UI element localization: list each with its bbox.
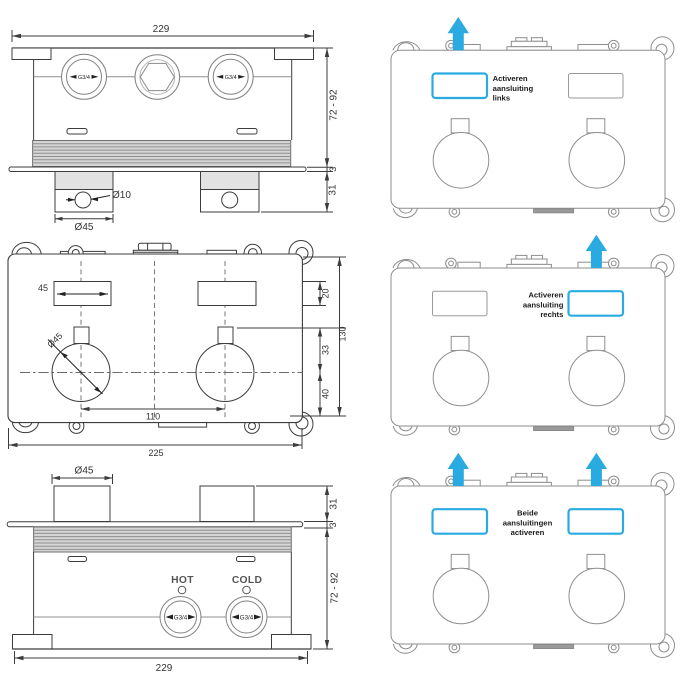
svg-text:20: 20 — [321, 288, 331, 298]
svg-text:aansluiting: aansluiting — [493, 84, 534, 93]
svg-text:110: 110 — [146, 412, 160, 422]
svg-text:72 - 92: 72 - 92 — [329, 89, 340, 121]
svg-text:G3/4: G3/4 — [225, 75, 237, 81]
svg-text:links: links — [493, 94, 511, 103]
svg-text:Ø45: Ø45 — [75, 466, 94, 477]
svg-text:G3/4: G3/4 — [240, 614, 254, 621]
svg-text:225: 225 — [148, 448, 163, 458]
svg-text:130: 130 — [338, 326, 348, 341]
svg-text:Ø45: Ø45 — [75, 222, 94, 233]
svg-text:rechts: rechts — [540, 310, 563, 319]
svg-text:G3/4: G3/4 — [174, 614, 188, 621]
svg-text:229: 229 — [156, 663, 173, 674]
svg-text:3: 3 — [328, 167, 338, 172]
svg-text:Beide: Beide — [517, 509, 539, 518]
svg-text:aansluitingen: aansluitingen — [503, 518, 553, 527]
svg-text:33: 33 — [321, 345, 331, 355]
svg-text:COLD: COLD — [232, 575, 262, 586]
svg-text:Activeren: Activeren — [493, 74, 528, 83]
svg-text:229: 229 — [153, 24, 170, 35]
svg-text:G3/4: G3/4 — [78, 75, 90, 81]
svg-text:Activeren: Activeren — [528, 291, 563, 300]
svg-text:40: 40 — [321, 389, 331, 399]
svg-text:aansluiting: aansluiting — [523, 300, 564, 309]
svg-text:Ø10: Ø10 — [112, 190, 131, 201]
svg-text:31: 31 — [329, 498, 340, 510]
svg-text:72 - 92: 72 - 92 — [330, 572, 341, 604]
svg-text:activeren: activeren — [511, 528, 545, 537]
svg-text:3: 3 — [328, 522, 338, 527]
svg-text:HOT: HOT — [171, 575, 194, 586]
svg-text:31: 31 — [328, 184, 339, 196]
svg-text:45: 45 — [38, 283, 48, 293]
